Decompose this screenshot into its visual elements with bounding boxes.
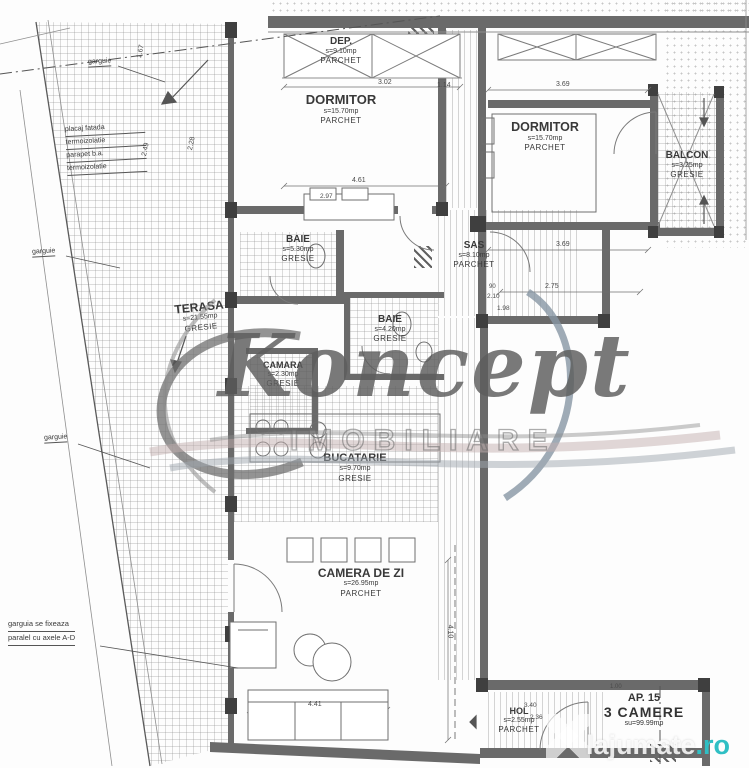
room-name: BUCATARIE <box>296 452 414 465</box>
apartment-total-area: su=99.99mp <box>584 720 704 727</box>
room-name: HOL <box>484 706 554 717</box>
site-watermark-icon <box>546 714 590 758</box>
room-finish: GRESIE <box>350 334 430 344</box>
room-finish: GRESIE <box>256 254 340 264</box>
room-label-sas: SAS s=8.10mp PARCHET <box>436 240 512 270</box>
room-area: s=2.55mp <box>484 717 554 725</box>
note-garguie-mid: garguie <box>32 247 56 255</box>
room-finish: GRESIE <box>248 379 318 389</box>
site-watermark-tld: .ro <box>696 730 731 760</box>
room-area: s=5.30mp <box>256 246 340 254</box>
room-area: s=15.70mp <box>494 135 596 143</box>
room-label-dormitor-2: DORMITOR s=15.70mp PARCHET <box>494 120 596 153</box>
room-name: BAIE <box>350 314 430 326</box>
room-name: SAS <box>436 240 512 252</box>
room-label-camara: CAMARA s=2.30mp GRESIE <box>248 360 318 389</box>
note-gutter-fixing: garguia se fixeaza paralel cu axele A-D <box>8 618 75 646</box>
note-garguie-low: garguie <box>44 433 68 441</box>
apartment-number: AP. 15 <box>584 692 704 704</box>
room-area: s=3.25mp <box>654 162 720 170</box>
room-label-dep: DEP. s=9.10mp PARCHET <box>286 36 396 66</box>
room-label-hol: HOL s=2.55mp PARCHET <box>484 706 554 735</box>
room-finish: PARCHET <box>484 725 554 735</box>
room-finish: PARCHET <box>436 260 512 270</box>
dimension-label: 3.69 <box>556 81 570 88</box>
room-label-camera-de-zi: CAMERA DE ZI s=26.95mp PARCHET <box>286 566 436 598</box>
room-finish: PARCHET <box>276 116 406 126</box>
room-label-bucatarie: BUCATARIE s=9.70mp GRESIE <box>296 452 414 483</box>
dimension-label: 2.97 <box>320 193 333 200</box>
floor-plan-canvas: DEP. s=9.10mp PARCHET DORMITOR s=15.70mp… <box>0 0 749 768</box>
room-label-balcon: BALCON s=3.25mp GRESIE <box>654 150 720 180</box>
room-finish: GRESIE <box>654 170 720 180</box>
room-area: s=9.10mp <box>286 48 396 56</box>
dimension-label: 2.36 <box>530 714 543 721</box>
room-name: BAIE <box>256 234 340 246</box>
room-label-baie-2: BAIE s=4.20mp GRESIE <box>350 314 430 344</box>
dimension-label: 3.40 <box>524 702 537 709</box>
apartment-type: 3 CAMERE <box>584 704 704 720</box>
room-finish: GRESIE <box>296 474 414 484</box>
note-facade-layers: placaj fatada termoizolatie parapet b.a.… <box>65 120 148 176</box>
room-name: CAMARA <box>248 360 318 371</box>
dimension-label: 2.75 <box>545 283 559 290</box>
room-name: DEP. <box>286 36 396 48</box>
room-finish: PARCHET <box>286 589 436 599</box>
room-name: BALCON <box>654 150 720 162</box>
dimension-label: 2.10 <box>487 293 500 300</box>
dimension-label: 3.69 <box>556 241 570 248</box>
room-label-baie-1: BAIE s=5.30mp GRESIE <box>256 234 340 264</box>
entry-marker-icon <box>470 716 476 728</box>
dimension-label: 3.02 <box>378 79 392 86</box>
dimension-label: 4.61 <box>352 177 366 184</box>
dimension-label: 1.98 <box>497 305 510 312</box>
room-finish: PARCHET <box>286 56 396 66</box>
room-area: s=26.95mp <box>286 580 436 588</box>
room-area: s=2.30mp <box>248 371 318 379</box>
room-name: DORMITOR <box>494 120 596 135</box>
room-area: s=9.70mp <box>296 465 414 473</box>
apartment-summary: AP. 15 3 CAMERE su=99.99mp <box>584 692 704 727</box>
dimension-label: 1.14 <box>437 82 451 89</box>
dimension-label: 90 <box>489 284 496 290</box>
dimension-label: 4.10 <box>446 625 453 639</box>
room-name: DORMITOR <box>276 92 406 108</box>
room-name: CAMERA DE ZI <box>286 566 436 580</box>
dimension-label: 1.00 <box>610 684 622 690</box>
note-garguie-top: garguie <box>88 57 112 65</box>
site-watermark: lajumate.ro <box>586 730 730 761</box>
room-area: s=15.70mp <box>276 108 406 116</box>
dimension-label: 4.41 <box>308 701 322 708</box>
walls <box>210 16 749 766</box>
site-watermark-name: lajumate <box>586 730 696 760</box>
room-area: s=8.10mp <box>436 252 512 260</box>
room-area: s=4.20mp <box>350 326 430 334</box>
room-finish: PARCHET <box>494 143 596 153</box>
room-label-dormitor-1: DORMITOR s=15.70mp PARCHET <box>276 92 406 126</box>
